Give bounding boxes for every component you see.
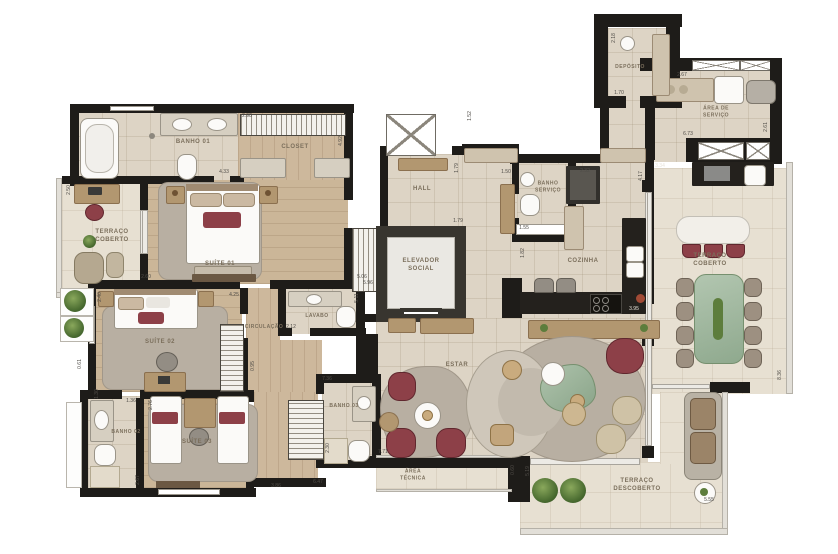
table-runner-plant (713, 298, 723, 340)
dining-chair (744, 302, 762, 321)
window-area-servico (740, 60, 772, 71)
tv-icon (704, 166, 730, 181)
window-suite03 (158, 489, 220, 495)
lounge-chair (74, 252, 104, 284)
bed-suite03-b (217, 396, 249, 464)
wall (645, 104, 655, 160)
ottoman (106, 252, 124, 278)
bar-counter (676, 216, 750, 244)
wall (508, 456, 530, 502)
laptop-icon (158, 376, 170, 384)
sink (94, 410, 109, 430)
upper-cabinet (464, 148, 518, 163)
glass-door-estar-terraco[interactable] (645, 192, 652, 446)
wall (316, 382, 324, 394)
railing-right (786, 162, 793, 394)
railing-descoberto-right (722, 392, 728, 534)
duct-left (66, 402, 82, 488)
dimension-label: 0.61 (77, 359, 83, 369)
wall (594, 14, 608, 108)
lamp-icon (172, 190, 178, 196)
bathtub-inner (85, 124, 114, 173)
decor-plant (540, 324, 548, 332)
beige-pouf (612, 396, 642, 425)
wall (502, 278, 522, 318)
round-table (502, 360, 522, 380)
window-banho01 (110, 106, 154, 111)
kitchen-counter-bottom (520, 292, 646, 314)
window-terraco (698, 142, 744, 160)
sink (207, 118, 227, 131)
bed-headboard (186, 184, 258, 191)
tan-pouf (562, 402, 586, 426)
bar-stool (726, 244, 745, 258)
sink-round (520, 172, 535, 187)
stool (556, 278, 576, 293)
lounger-cushion (690, 432, 716, 464)
shower-head-icon (149, 133, 155, 139)
wall-post (642, 446, 654, 458)
wardrobe-suite03 (288, 400, 324, 460)
desk-chair (156, 352, 178, 372)
armchair (386, 428, 416, 458)
glass-door-terraco-esq[interactable] (140, 210, 148, 254)
nightstand (198, 291, 214, 307)
window-area-servico (692, 60, 740, 71)
sideboard (388, 318, 416, 333)
bed-throw (219, 412, 245, 424)
hall-console (398, 158, 448, 171)
toilet (336, 306, 356, 328)
elevator-car (387, 237, 455, 309)
bed-throw (138, 312, 164, 324)
dining-chair (744, 326, 762, 345)
burner-icon (602, 297, 609, 304)
bar-cabinet (420, 318, 474, 334)
grill-sink (744, 165, 766, 186)
bed-throw (152, 412, 178, 424)
dining-chair (744, 278, 762, 297)
wall (380, 146, 388, 230)
wall (356, 288, 365, 334)
kitchen-tall-cabinet (564, 206, 584, 250)
side-table-wood (379, 412, 399, 432)
sink (306, 294, 322, 305)
burner-icon (593, 297, 600, 304)
sink (357, 396, 371, 410)
shower-tray (516, 224, 568, 235)
planter-bush (64, 318, 84, 338)
toilet (94, 444, 116, 466)
plant-pot (83, 235, 96, 248)
wall (356, 334, 378, 376)
sink (172, 118, 192, 131)
wall (82, 390, 122, 399)
railing-descoberto-bottom (520, 528, 728, 535)
nightstand (98, 291, 114, 307)
floor-circulacao (246, 288, 280, 392)
tray-table (541, 362, 565, 386)
side-table-gold (422, 410, 433, 421)
toilet (177, 154, 197, 180)
bed-pillow (146, 297, 170, 308)
bed-pillow (118, 297, 144, 310)
upper-cabinet (600, 148, 646, 163)
railing-terraco-esq (56, 178, 62, 298)
laundry-sink (714, 76, 744, 104)
bed-pillow (190, 193, 222, 207)
bar-stool (704, 244, 723, 258)
wall (278, 328, 292, 336)
kitchen-sink (626, 262, 644, 278)
decor-plant (640, 324, 648, 332)
lounger-cushion (690, 398, 716, 430)
dining-chair (676, 326, 694, 345)
sofa-table (490, 424, 514, 446)
wall (136, 398, 144, 490)
bed-throw (203, 212, 241, 228)
closet-dresser (314, 158, 350, 178)
bed-pillow (223, 193, 255, 207)
burner-icon (602, 305, 609, 312)
cabinet (500, 184, 515, 234)
laundry-basin-icon (679, 85, 688, 94)
rail-area-tecnica-bottom (376, 489, 512, 492)
lamp-icon (265, 190, 271, 196)
armchair (436, 428, 466, 458)
terrace-plant (560, 478, 586, 503)
burner-icon (593, 305, 600, 312)
tv-console-suite03 (156, 481, 200, 488)
sink-round (620, 36, 635, 51)
monitor-icon (88, 187, 102, 195)
window-terraco (746, 142, 770, 160)
desk-chair (85, 204, 104, 221)
planter-bush (64, 290, 86, 312)
dining-chair (676, 278, 694, 297)
toilet (348, 440, 370, 462)
elevator-door-slit (404, 312, 438, 314)
tv-console-suite01 (192, 274, 256, 282)
deposito-shelves (652, 34, 670, 96)
closet-rack (240, 114, 346, 136)
toilet (520, 194, 540, 216)
dining-chair (676, 302, 694, 321)
desk-chair (189, 428, 209, 446)
table-plant (700, 488, 708, 496)
wall-post (642, 180, 654, 192)
dining-chair (744, 349, 762, 368)
shower-tray (324, 438, 348, 464)
bed-headboard (114, 289, 196, 295)
beige-pouf (596, 424, 626, 454)
wall (254, 478, 326, 487)
stool (534, 278, 554, 293)
glass-divider-terraco (652, 384, 710, 389)
wall (70, 104, 79, 186)
shower-tray (90, 466, 120, 488)
wall (594, 96, 626, 108)
decor-flowers (636, 294, 645, 303)
armchair (606, 338, 644, 374)
kitchen-sink (626, 246, 644, 262)
shaft-above-hall (386, 114, 436, 156)
bar-stool (682, 244, 701, 258)
armchair (388, 372, 416, 401)
desk-suite03 (184, 398, 216, 428)
wall (140, 176, 148, 210)
dimension-label: 1.52 (467, 111, 473, 121)
dining-chair (676, 349, 694, 368)
fridge-face (570, 170, 596, 200)
terrace-plant (532, 478, 558, 503)
washer (746, 80, 776, 104)
bed-suite03-a (150, 396, 182, 464)
wardrobe-suite02 (220, 324, 244, 392)
wall (240, 288, 248, 314)
floor-plan: BANHO 01 CLOSET TERRAÇO COBERTO SUÍTE 01… (0, 0, 838, 554)
closet-dresser (240, 158, 286, 178)
